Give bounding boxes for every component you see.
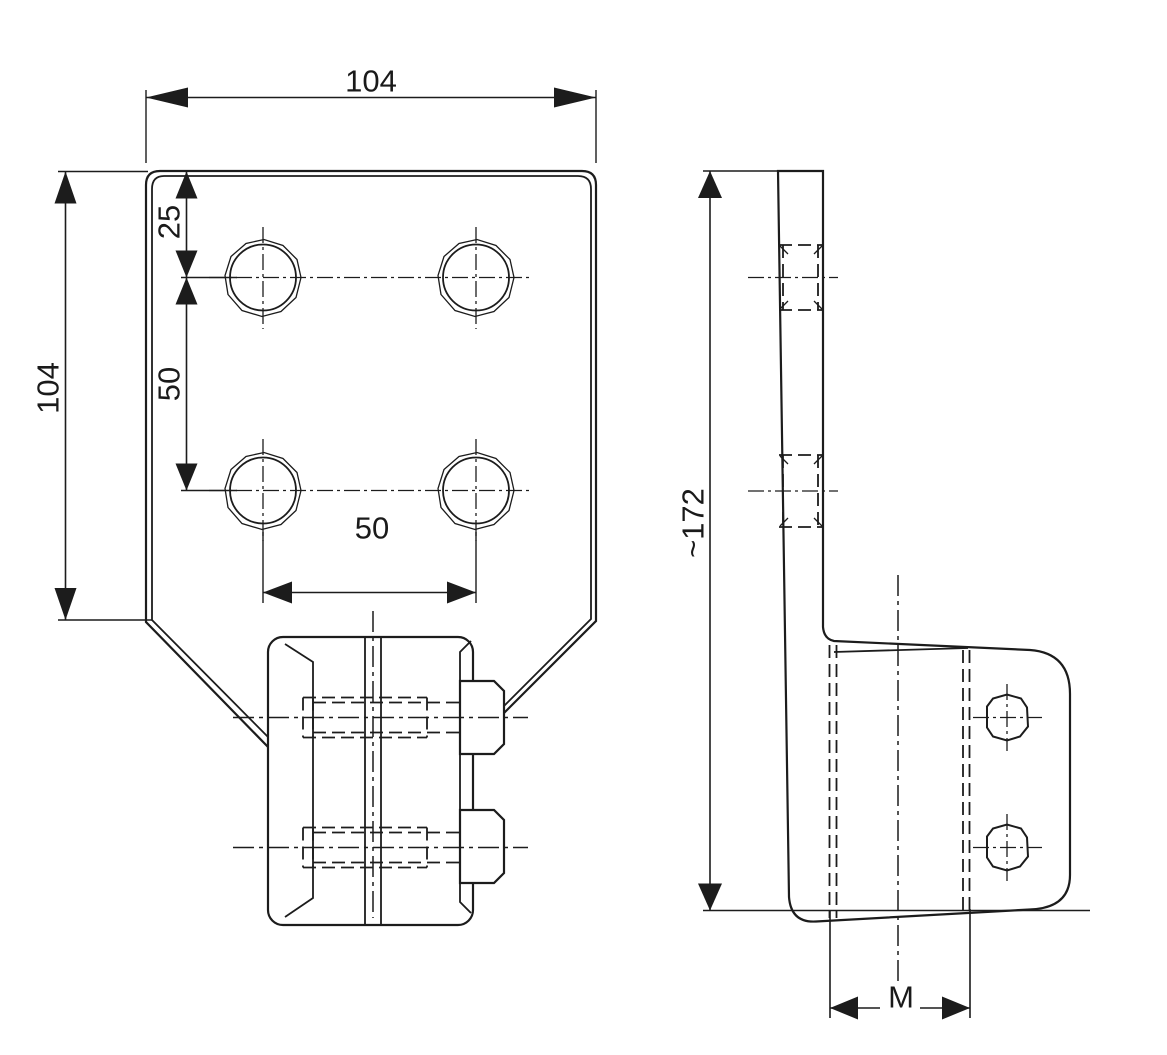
arrowhead-down (176, 251, 198, 278)
dim-label-jaw-width: M (888, 980, 914, 1015)
arrowhead-right (942, 997, 970, 1020)
mounting-hole (438, 453, 514, 530)
dimension-jaw-width: M (830, 909, 970, 1020)
hole-centerlines (209, 227, 529, 541)
dim-label-hole-offset-top: 25 (152, 205, 187, 239)
dimension-front-height: 104 (31, 172, 153, 621)
dim-label-side-height: ~172 (676, 488, 711, 558)
dimension-hole-spacing-horizontal: 50 (263, 511, 476, 604)
front-view (146, 171, 596, 925)
bolt-nut-bottom (460, 810, 504, 883)
dim-label-front-width: 104 (345, 64, 397, 99)
dimension-hole-offset-top: 25 (152, 172, 238, 278)
arrowhead-up (698, 171, 722, 198)
clamp-body (268, 637, 473, 925)
dimension-hole-spacing-vertical: 50 (152, 278, 238, 491)
arrowhead-down (55, 588, 77, 620)
arrowhead-left (146, 88, 188, 108)
dimension-front-width: 104 (146, 64, 596, 164)
mounting-hole (438, 240, 514, 317)
arrowhead-down (698, 884, 722, 911)
dim-label-hole-spacing-horizontal: 50 (355, 511, 389, 546)
arrowhead-left (263, 582, 292, 604)
arrowhead-right (554, 88, 596, 108)
side-outline (778, 171, 1070, 922)
dim-label-front-height: 104 (31, 362, 66, 414)
technical-drawing-canvas: 104 104 25 50 50 (0, 0, 1167, 1055)
arrowhead-right (447, 582, 476, 604)
dim-label-hole-spacing-vertical: 50 (152, 367, 187, 401)
arrowhead-down (176, 464, 198, 491)
drawing-page: 104 104 25 50 50 (0, 0, 1167, 1055)
arrowhead-left (830, 997, 858, 1020)
side-view (748, 171, 1070, 985)
arrowhead-up (176, 278, 198, 305)
arrowhead-up (55, 172, 77, 204)
